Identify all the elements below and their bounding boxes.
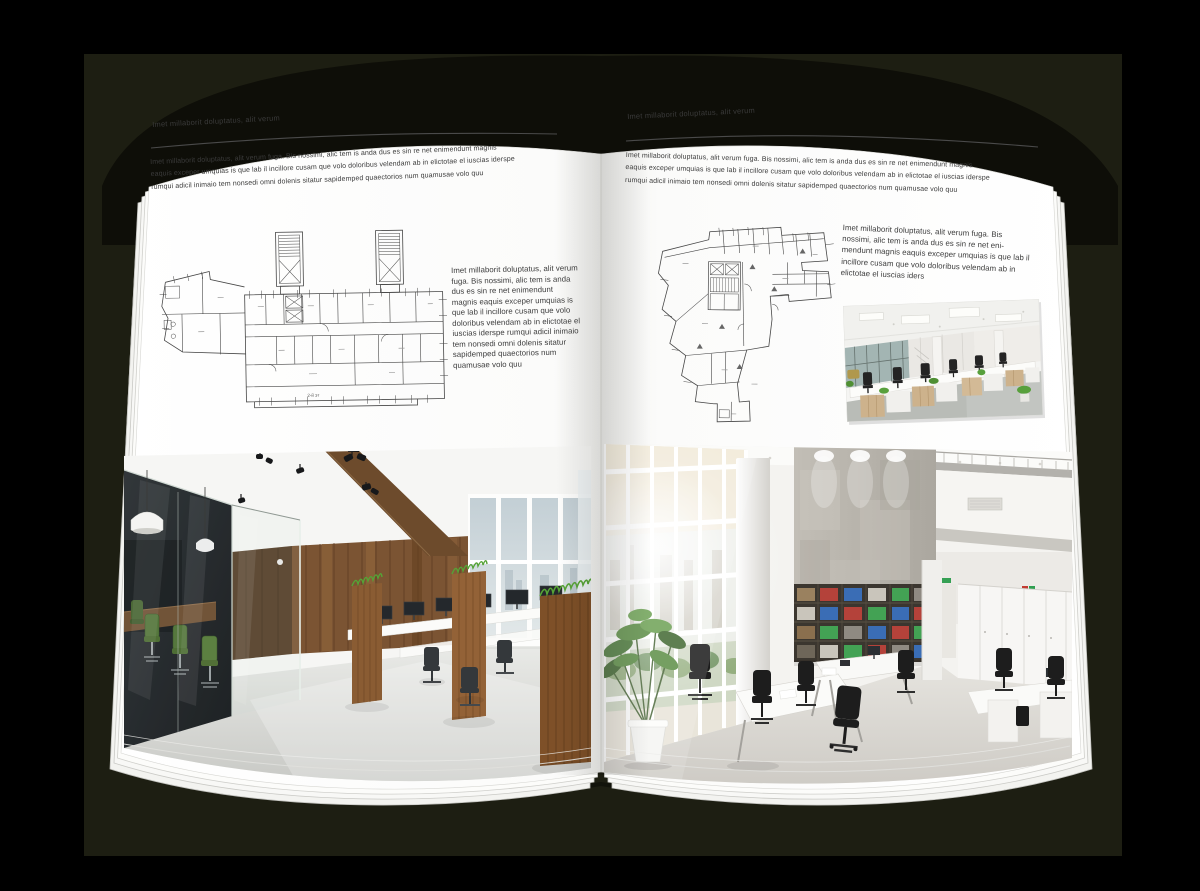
magazine-mockup: 2-й эт	[0, 0, 1200, 891]
spine-shade-left	[556, 150, 601, 775]
book-graphic: 2-й эт	[0, 0, 1200, 891]
bookshelf	[794, 584, 936, 662]
left-page-side-text: Imet millaborit doluptatus, alit verum f…	[451, 263, 581, 371]
right-page-side-text: Imet millaborit doluptatus, alit verum f…	[840, 222, 1032, 287]
photo-office-small	[843, 299, 1043, 422]
photo-office-wood	[124, 446, 600, 788]
spine-shade-right	[601, 150, 649, 775]
wall-wash-lights	[811, 450, 909, 508]
floor-plan-left-label: 2-й эт	[307, 392, 319, 398]
exit-sign	[941, 578, 951, 583]
